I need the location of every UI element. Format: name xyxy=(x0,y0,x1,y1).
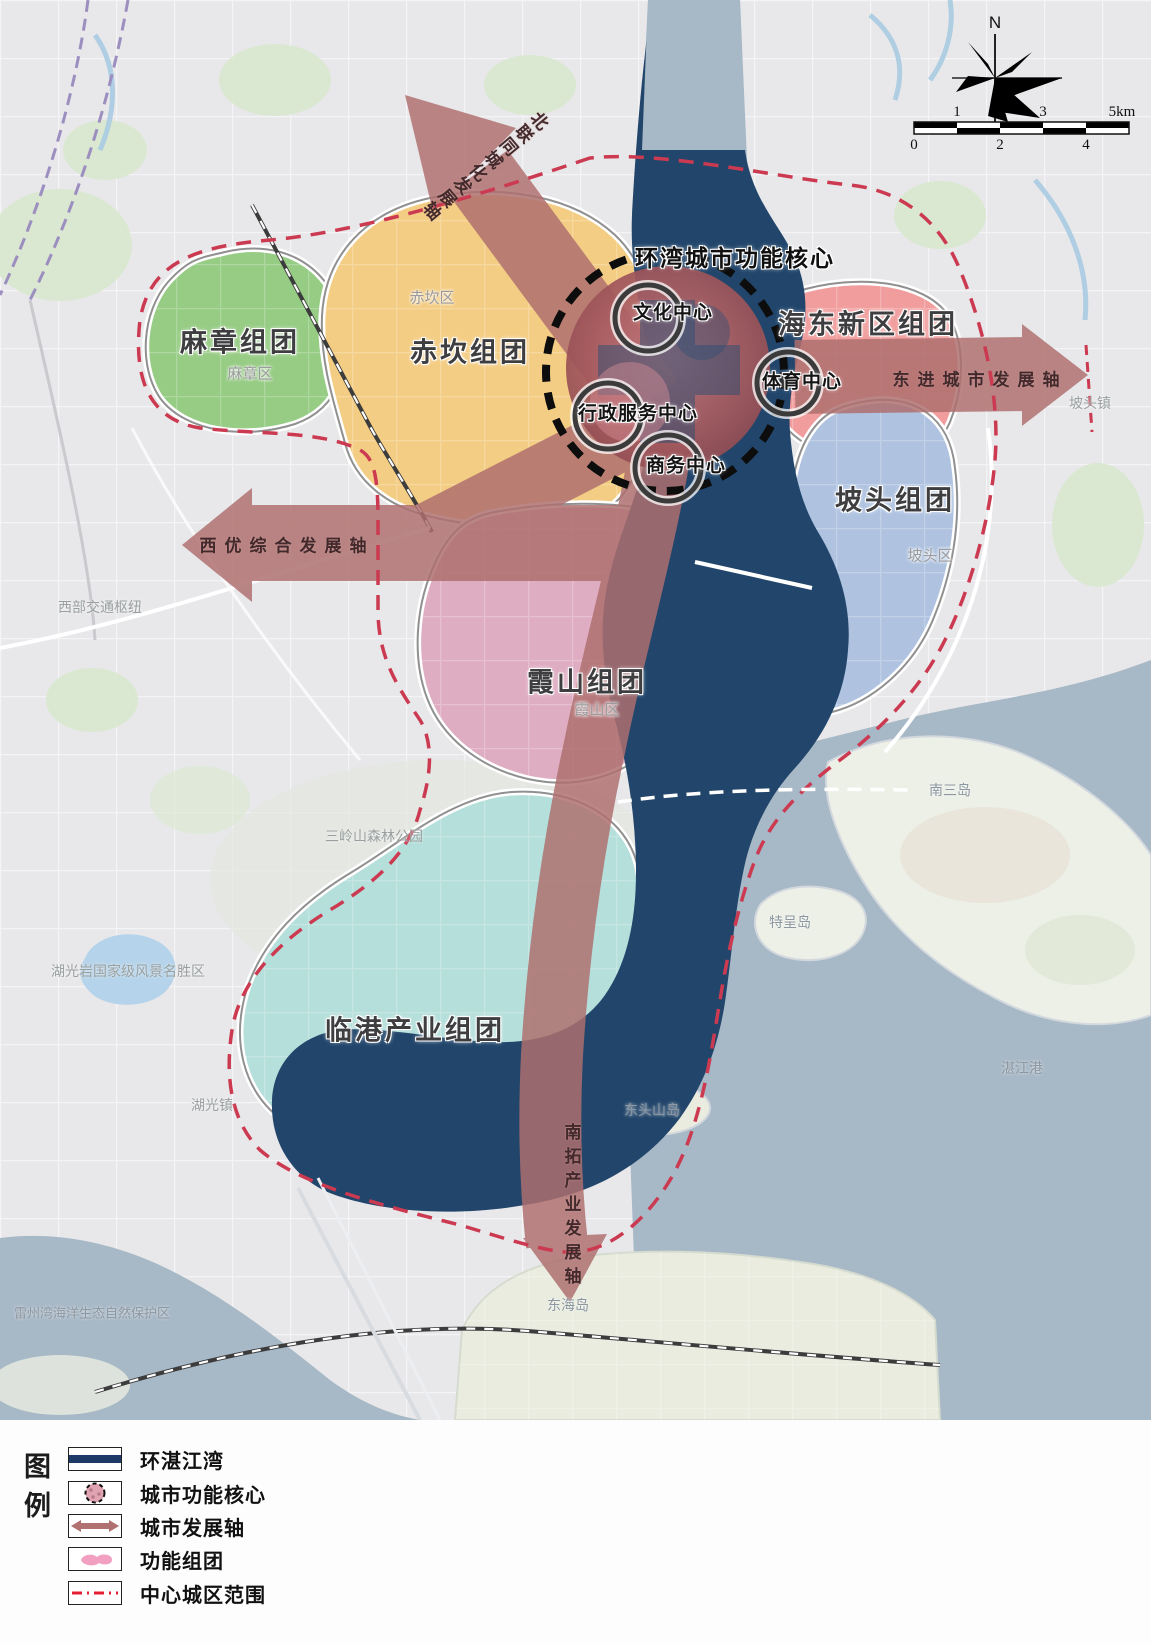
boundary-swatch xyxy=(69,1582,121,1604)
planning-map-page: N 1 3 5km 0 2 4 麻章组团 赤坎组团 海东新区组团 坡头组团 霞山… xyxy=(0,0,1151,1644)
techeng-island xyxy=(755,886,866,960)
legend-label-boundary: 中心城区范围 xyxy=(140,1579,266,1608)
legend-item-bay: 环湛江湾 xyxy=(68,1447,224,1471)
legend-panel: 图例 环湛江湾 城市功能核心 城市发展轴 xyxy=(0,1420,1151,1644)
map-canvas: N 1 3 5km 0 2 4 xyxy=(0,0,1151,1420)
legend-key-cluster xyxy=(68,1547,122,1571)
legend-item-cluster: 功能组团 xyxy=(68,1547,224,1571)
legend-item-core: 城市功能核心 xyxy=(68,1481,266,1505)
legend-label-bay: 环湛江湾 xyxy=(140,1445,224,1474)
legend-key-bay xyxy=(68,1447,122,1471)
scale-tick-2: 2 xyxy=(996,137,1004,153)
cluster-swatch xyxy=(69,1548,121,1570)
compass-north-label: N xyxy=(989,13,1001,32)
scale-tick-0: 0 xyxy=(910,137,918,153)
scale-tick-3: 3 xyxy=(1039,104,1047,120)
axis-swatch xyxy=(69,1515,121,1537)
legend-title: 图例 xyxy=(16,1452,55,1530)
legend-key-axis xyxy=(68,1514,122,1538)
legend-key-boundary xyxy=(68,1581,122,1605)
legend-key-core xyxy=(68,1481,122,1505)
legend-label-axis: 城市发展轴 xyxy=(140,1512,245,1541)
legend-item-axis: 城市发展轴 xyxy=(68,1514,245,1538)
bay-north-inlet xyxy=(642,0,746,150)
cluster-mazhang-region xyxy=(146,249,346,432)
bay-swatch xyxy=(69,1448,121,1470)
legend-label-cluster: 功能组团 xyxy=(140,1545,224,1574)
scale-tick-5km: 5km xyxy=(1109,104,1136,120)
scale-tick-4: 4 xyxy=(1082,137,1090,153)
legend-label-core: 城市功能核心 xyxy=(140,1479,266,1508)
legend-item-boundary: 中心城区范围 xyxy=(68,1581,266,1605)
scale-tick-1: 1 xyxy=(953,104,961,120)
core-swatch xyxy=(69,1482,121,1504)
